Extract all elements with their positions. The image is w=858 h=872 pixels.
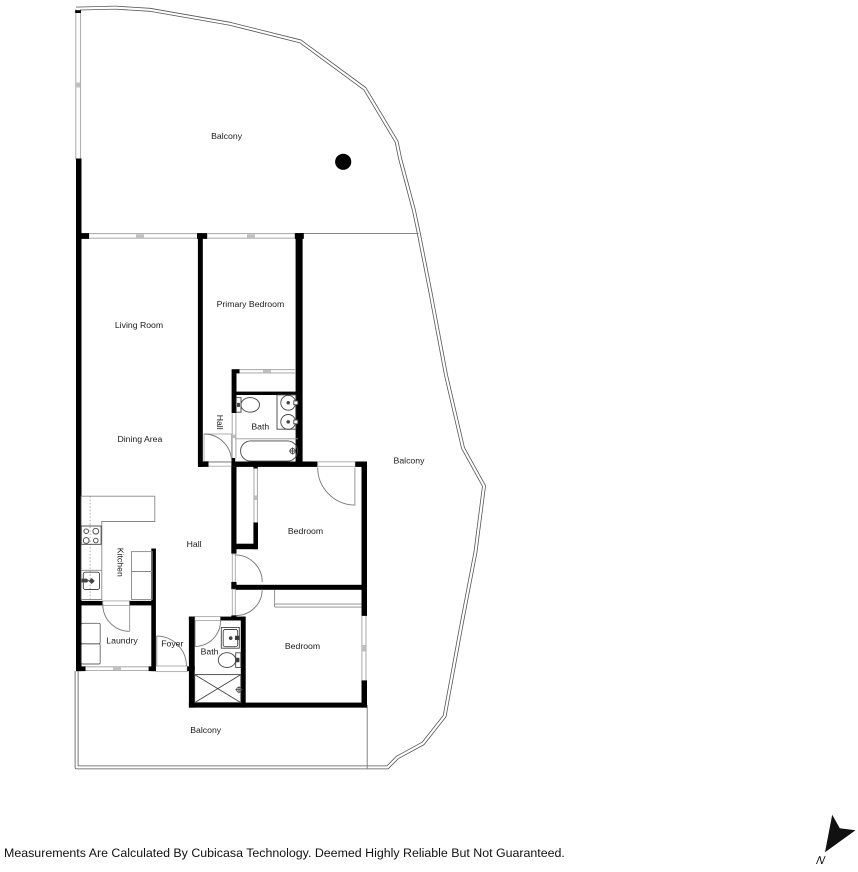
svg-text:Hall: Hall [187,539,202,549]
svg-text:Kitchen: Kitchen [115,548,125,577]
svg-text:Bath: Bath [251,422,269,432]
svg-text:Laundry: Laundry [106,635,138,645]
svg-text:Hall: Hall [215,415,225,430]
svg-text:Living Room: Living Room [115,320,163,330]
svg-text:Dining Area: Dining Area [117,434,162,444]
svg-text:Balcony: Balcony [211,131,243,141]
svg-text:Balcony: Balcony [394,455,426,465]
svg-text:Primary Bedroom: Primary Bedroom [217,299,285,309]
svg-text:Bedroom: Bedroom [288,526,323,536]
svg-text:Foyer: Foyer [161,639,183,649]
svg-text:Bath: Bath [201,647,219,657]
svg-text:Measurements Are Calculated By: Measurements Are Calculated By Cubicasa … [4,846,565,860]
svg-text:Balcony: Balcony [190,725,222,735]
svg-text:Bedroom: Bedroom [285,641,320,651]
